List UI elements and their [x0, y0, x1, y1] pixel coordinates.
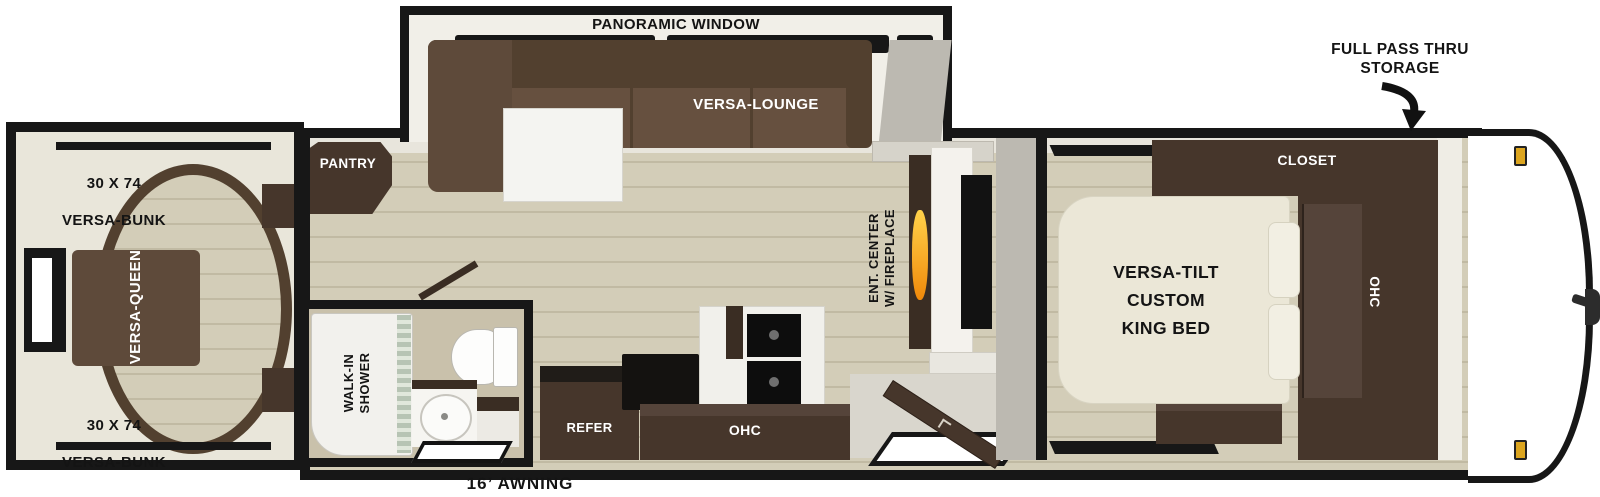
refer-label: REFER: [540, 420, 639, 436]
versa-lounge-label: VERSA-LOUNGE: [646, 96, 866, 115]
awning-label: 16’ AWNING: [430, 473, 610, 494]
bathroom: WALK-IN SHOWER: [300, 300, 533, 467]
bed-foot-cabinet: [1156, 402, 1282, 444]
front-cap: [1468, 129, 1593, 483]
sink-drain: [769, 377, 779, 387]
toilet-tank: [493, 327, 518, 387]
full-pass-thru-label: FULL PASS THRU STORAGE: [1300, 40, 1500, 79]
bunk-label-top: 30 X 74 VERSA-BUNK: [34, 156, 194, 231]
bedroom-partition-wall: [1036, 138, 1047, 460]
tv: [961, 175, 992, 329]
king-bed-label: VERSA-TILT CUSTOM KING BED: [1066, 258, 1266, 342]
bunk-top-size: 30 X 74: [87, 175, 142, 192]
sink-bowl-top: [747, 314, 801, 357]
lounge-table: [503, 108, 623, 202]
bath-mat: [411, 441, 513, 463]
shower-glass-door: [397, 315, 411, 453]
bunk-top-name: VERSA-BUNK: [62, 212, 166, 229]
versa-queen-label: VERSA-QUEEN: [127, 232, 147, 382]
marker-light-top: [1514, 146, 1527, 166]
cooktop: [622, 354, 699, 410]
floorplan-canvas: 30 X 74 VERSA-BUNK 30 X 74 VERSA-BUNK VE…: [0, 0, 1600, 497]
bunk-bottom-name: VERSA-BUNK: [62, 454, 166, 471]
bunk-corner-cabinet-top: [262, 184, 294, 228]
bunk-bottom-size: 30 X 74: [87, 417, 142, 434]
counter-edge-panel: [726, 306, 743, 359]
rear-window-frame: [24, 248, 66, 352]
panoramic-window-label: PANORAMIC WINDOW: [526, 16, 826, 35]
ent-center-label: ENT. CENTER W/ FIREPLACE: [866, 176, 906, 340]
rear-bunk-room: 30 X 74 VERSA-BUNK 30 X 74 VERSA-BUNK VE…: [6, 122, 304, 470]
cushion-divider: [630, 88, 633, 148]
hitch-coupler: [1585, 289, 1600, 325]
closet-label: CLOSET: [1247, 152, 1367, 170]
walk-in-shower-label: WALK-IN SHOWER: [341, 323, 377, 443]
bunk-room-window-top: [56, 142, 271, 150]
ohc-top-face: [640, 404, 850, 416]
ohc-kitchen-label: OHC: [640, 422, 850, 440]
kitchen-sink: [747, 314, 801, 404]
pantry-label: PANTRY: [308, 156, 388, 173]
door-handle: [938, 419, 952, 433]
storage-arrow-icon: [1378, 82, 1430, 132]
versa-lounge-armrest: [846, 40, 872, 148]
bath-side-counter: [477, 397, 519, 411]
pillow: [1268, 222, 1300, 298]
marker-light-bottom: [1514, 440, 1527, 460]
bedroom-partition-gray: [996, 138, 1036, 460]
pillow: [1268, 304, 1300, 380]
vanity-counter-edge: [412, 380, 477, 389]
slideout-sidewall: [878, 40, 951, 146]
fireplace-flame: [912, 210, 928, 300]
bunk-corner-cabinet-bottom: [262, 368, 294, 412]
vanity-cabinet: [412, 380, 477, 447]
wardrobe-inner-panel: [1302, 204, 1362, 398]
rear-window-pane: [32, 258, 52, 342]
front-interior-wall: [1437, 138, 1462, 460]
versa-lounge-chaise: [428, 40, 512, 192]
sink-bowl-bottom: [747, 361, 801, 404]
sink-drain: [441, 413, 448, 420]
sink-drain: [769, 330, 779, 340]
ohc-bedroom-label: OHC: [1362, 262, 1382, 322]
bunk-label-bottom: 30 X 74 VERSA-BUNK: [34, 398, 194, 473]
